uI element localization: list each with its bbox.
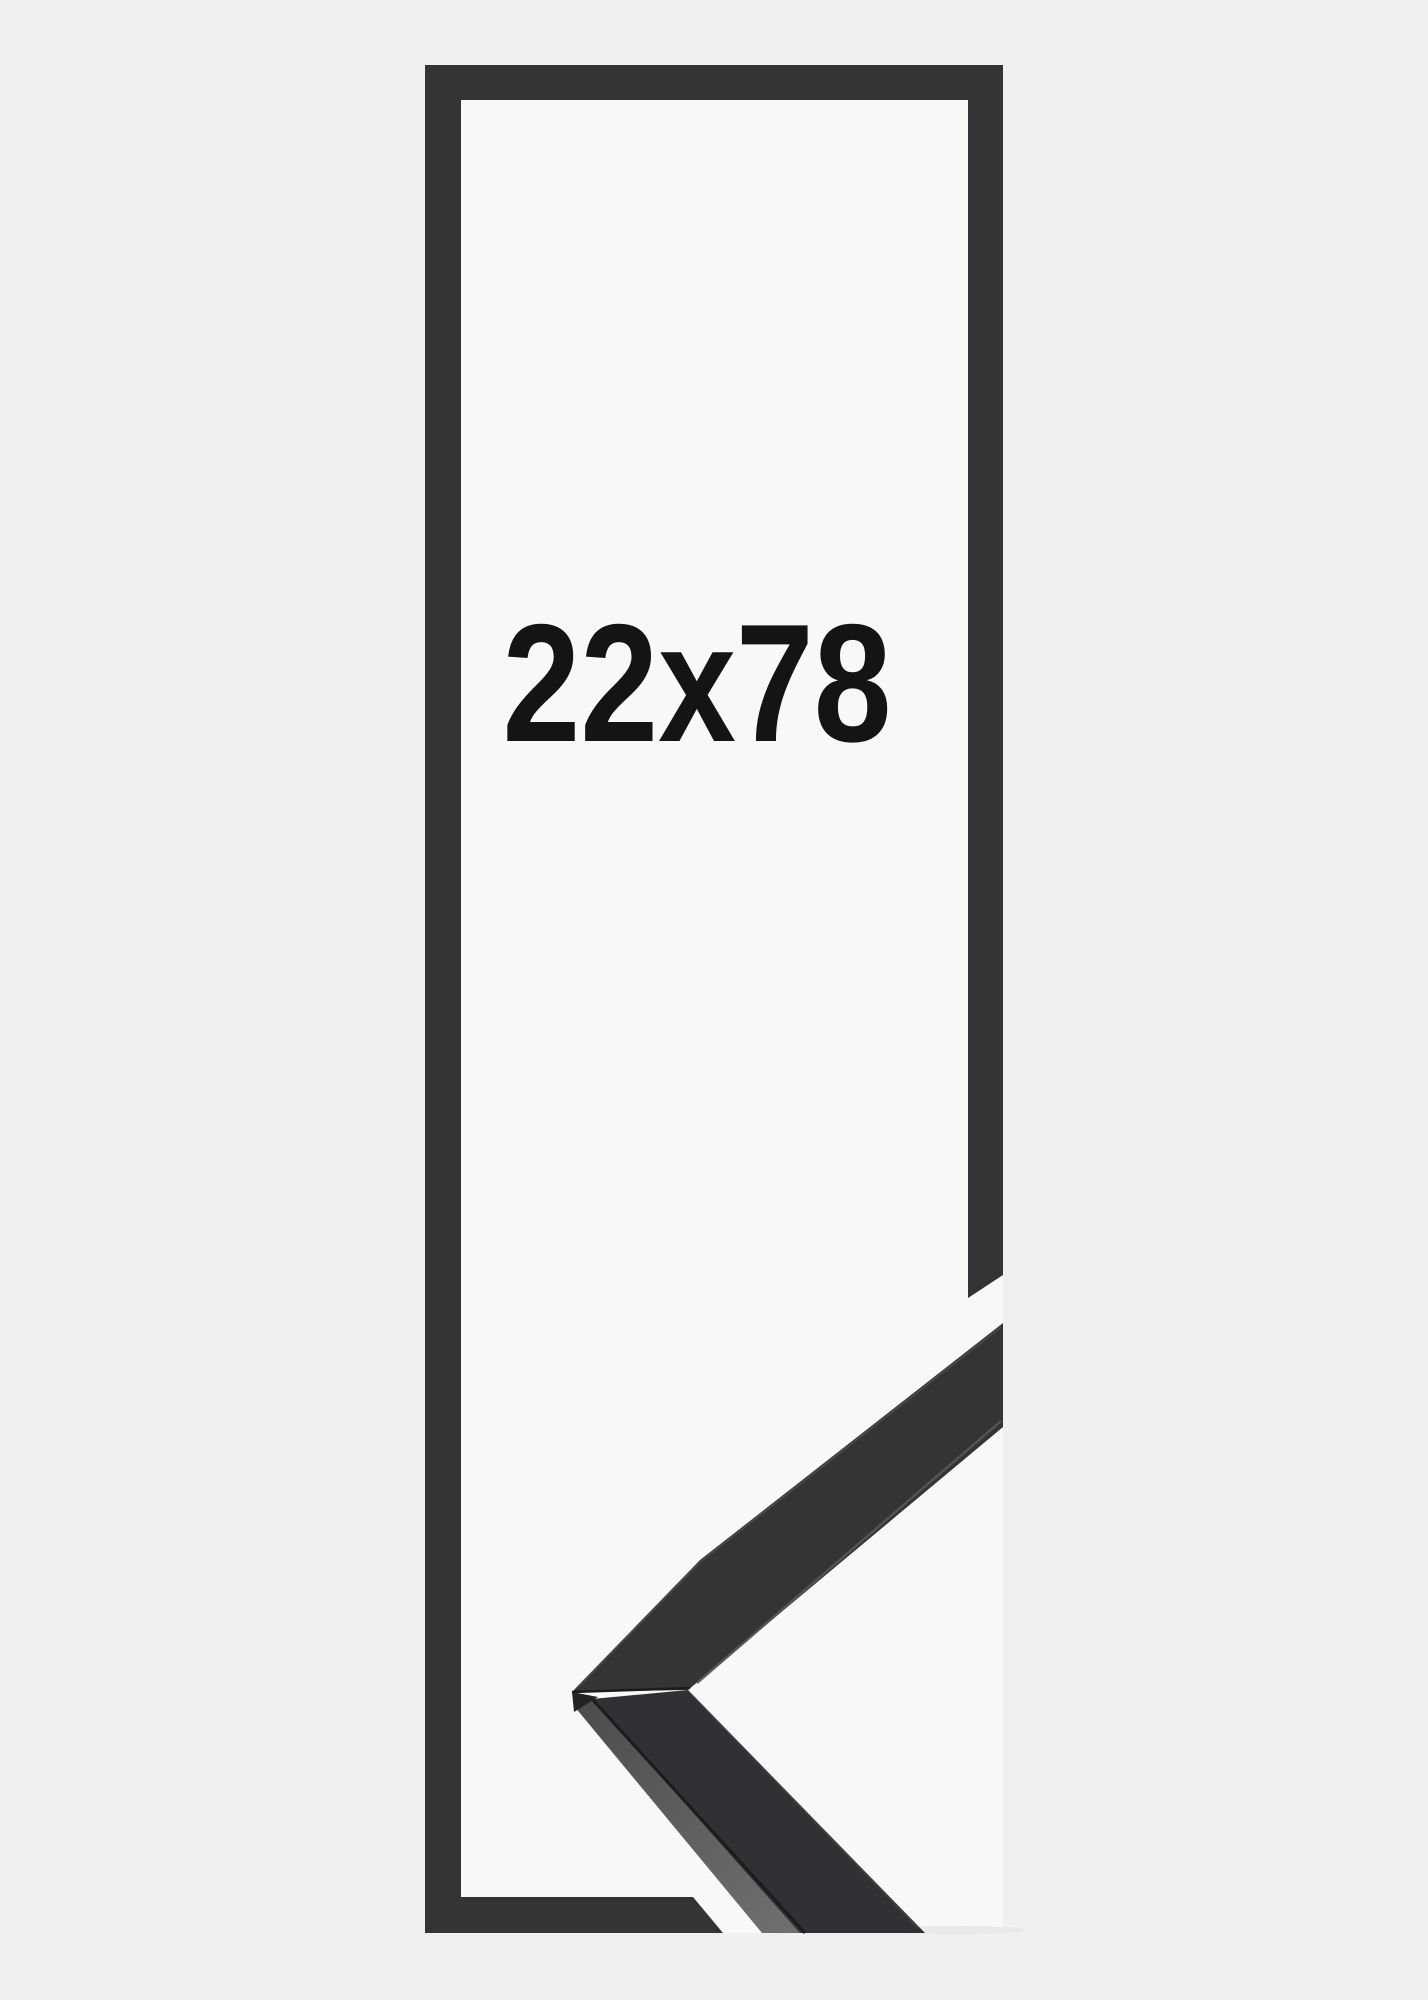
frame-outline-top [425,65,1003,100]
product-image-stage: 22x78 [0,0,1428,2000]
frame-outline-left [425,65,461,1933]
frame-outline-right [968,65,1003,1298]
product-image: 22x78 [0,0,1428,2000]
frame-outline-bottom [425,1897,723,1933]
size-label: 22x78 [503,589,892,777]
